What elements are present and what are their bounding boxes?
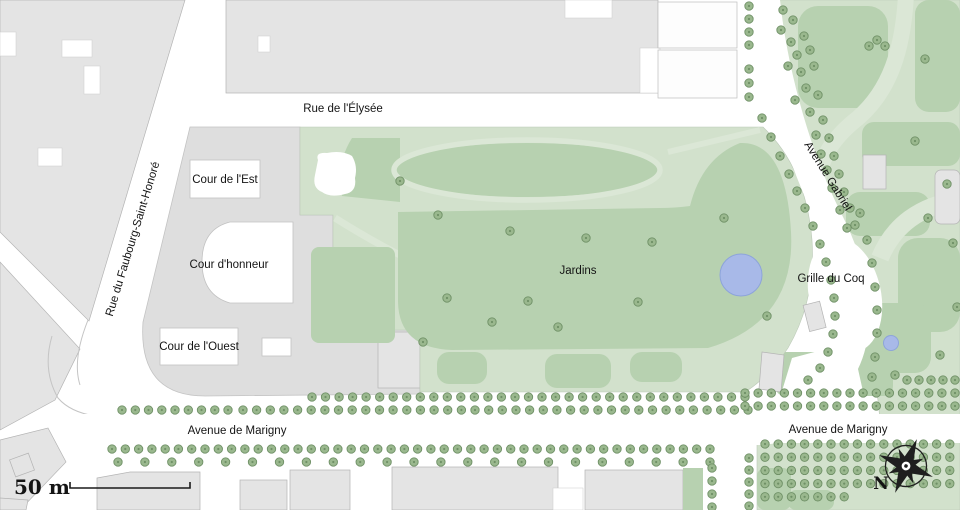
tree-icon [389, 393, 397, 401]
tree-icon [517, 458, 525, 466]
tree-icon [464, 458, 472, 466]
tree-icon [863, 236, 871, 244]
tree-center [669, 448, 671, 450]
garden-pond [720, 254, 762, 296]
tree-icon [118, 406, 126, 414]
tree-center [941, 392, 943, 394]
tree-icon [802, 84, 810, 92]
tree-icon [816, 240, 824, 248]
tree-center [582, 396, 584, 398]
tree-icon [853, 479, 861, 487]
tree-center [936, 469, 938, 471]
tree-icon [843, 224, 851, 232]
tree-icon [266, 406, 274, 414]
tree-center [946, 183, 948, 185]
tree-icon [335, 393, 343, 401]
tree-center [711, 480, 713, 482]
tree-center [417, 448, 419, 450]
tree-center [324, 409, 326, 411]
tree-center [922, 483, 924, 485]
tree-center [568, 396, 570, 398]
tree-center [637, 301, 639, 303]
tree-icon [777, 26, 785, 34]
tree-center [403, 448, 405, 450]
tree-icon [467, 445, 475, 453]
tree-center [446, 396, 448, 398]
tree-icon [800, 466, 808, 474]
street-label-avenue-de-marigny-west: Avenue de Marigny [188, 425, 287, 437]
tree-center [909, 483, 911, 485]
tree-icon [648, 406, 656, 414]
tree-center [928, 405, 930, 407]
tree-center [823, 405, 825, 407]
tree-center [556, 409, 558, 411]
tree-center [324, 396, 326, 398]
tree-center [365, 409, 367, 411]
tree-center [830, 469, 832, 471]
tree-icon [565, 393, 573, 401]
tree-center [377, 448, 379, 450]
tree-center [870, 443, 872, 445]
tree-center [804, 207, 806, 209]
tree-icon [457, 406, 465, 414]
tree-center [242, 409, 244, 411]
tree-icon [727, 393, 735, 401]
tree-icon [471, 406, 479, 414]
tree-center [915, 405, 917, 407]
tree-center [419, 409, 421, 411]
tree-center [217, 448, 219, 450]
tree-icon [635, 406, 643, 414]
tree-icon [846, 389, 854, 397]
tree-center [709, 448, 711, 450]
tree-icon [946, 453, 954, 461]
tree-icon [846, 402, 854, 410]
tree-icon [921, 55, 929, 63]
tree-center [413, 461, 415, 463]
tree-icon [158, 406, 166, 414]
park-pavilion [863, 155, 886, 189]
tree-icon [108, 445, 116, 453]
tree-center [709, 461, 711, 463]
tree-icon [400, 445, 408, 453]
tree-icon [673, 393, 681, 401]
tree-center [655, 461, 657, 463]
tree-icon [830, 152, 838, 160]
tree-icon [457, 393, 465, 401]
tree-center [696, 448, 698, 450]
tree-icon [480, 445, 488, 453]
tree-center [748, 505, 750, 507]
tree-center [392, 396, 394, 398]
tree-center [597, 409, 599, 411]
tree-icon [787, 466, 795, 474]
tree-icon [224, 406, 232, 414]
tree-center [828, 137, 830, 139]
tree-icon [498, 406, 506, 414]
tree-center [805, 87, 807, 89]
tree-icon [871, 353, 879, 361]
tree-icon [840, 493, 848, 501]
tree-center [949, 469, 951, 471]
tree-icon [866, 440, 874, 448]
tree-icon [761, 440, 769, 448]
tree-center [790, 443, 792, 445]
tree-center [720, 409, 722, 411]
tree-center [843, 456, 845, 458]
tree-icon [745, 2, 753, 10]
lawn [545, 354, 611, 388]
tree-icon [859, 402, 867, 410]
tree-center [757, 405, 759, 407]
tree-center [191, 448, 193, 450]
tree-icon [946, 479, 954, 487]
tree-icon [720, 214, 728, 222]
tree-center [813, 65, 815, 67]
parcel [658, 50, 737, 98]
tree-icon [825, 134, 833, 142]
tree-icon [745, 93, 753, 101]
tree-icon [267, 445, 275, 453]
tree-icon [307, 406, 315, 414]
tree-center [730, 396, 732, 398]
tree-center [924, 58, 926, 60]
tree-center [636, 396, 638, 398]
tree-center [748, 457, 750, 459]
tree-center [777, 456, 779, 458]
tree-center [337, 409, 339, 411]
lawn [630, 352, 682, 382]
tree-center [748, 82, 750, 84]
tree-icon [776, 152, 784, 160]
tree-icon [666, 445, 674, 453]
tree-icon [131, 406, 139, 414]
tree-icon [806, 46, 814, 54]
tree-center [609, 396, 611, 398]
tree-center [351, 409, 353, 411]
tree-icon [383, 458, 391, 466]
tree-center [796, 190, 798, 192]
tree-icon [634, 298, 642, 306]
tree-icon [859, 389, 867, 397]
tree-center [174, 409, 176, 411]
tree-center [830, 456, 832, 458]
tree-icon [851, 221, 859, 229]
tree-icon [903, 376, 911, 384]
tree-center [651, 409, 653, 411]
tree-icon [943, 180, 951, 188]
tree-center [856, 456, 858, 458]
tree-center [884, 45, 886, 47]
tree-center [856, 443, 858, 445]
tree-icon [793, 389, 801, 397]
tree-center [817, 94, 819, 96]
tree-icon [252, 406, 260, 414]
tree-icon [434, 211, 442, 219]
tree-center [555, 396, 557, 398]
tree-center [849, 405, 851, 407]
tree-icon [144, 406, 152, 414]
tree-center [138, 448, 140, 450]
tree-icon [293, 406, 301, 414]
tree-icon [761, 453, 769, 461]
courtyard-cutout [640, 48, 660, 93]
tree-center [764, 456, 766, 458]
tree-center [437, 214, 439, 216]
tree-icon [387, 445, 395, 453]
tree-center [483, 448, 485, 450]
tree-icon [827, 479, 835, 487]
gate-building [759, 352, 784, 392]
tree-icon [806, 402, 814, 410]
tree-icon [741, 402, 749, 410]
tree-center [777, 496, 779, 498]
tree-center [770, 136, 772, 138]
tree-icon [679, 458, 687, 466]
tree-center [589, 448, 591, 450]
tree-center [456, 448, 458, 450]
tree-center [164, 448, 166, 450]
tree-center [386, 461, 388, 463]
tree-icon [814, 466, 822, 474]
tree-icon [493, 445, 501, 453]
tree-icon [767, 402, 775, 410]
tree-icon [566, 406, 574, 414]
tree-center [305, 461, 307, 463]
tree-center [117, 461, 119, 463]
place-label-cour-de-l-est: Cour de l'Est [192, 174, 258, 186]
tree-icon [307, 445, 315, 453]
tree-center [949, 483, 951, 485]
tree-icon [334, 406, 342, 414]
tree-icon [485, 406, 493, 414]
tree-center [422, 341, 424, 343]
tree-center [928, 392, 930, 394]
tree-icon [544, 458, 552, 466]
tree-icon [730, 406, 738, 414]
tree-center [949, 456, 951, 458]
tree-center [359, 461, 361, 463]
tree-icon [938, 402, 946, 410]
tree-icon [600, 445, 608, 453]
tree-icon [389, 406, 397, 414]
tree-center [876, 309, 878, 311]
tree-center [144, 461, 146, 463]
tree-icon [652, 458, 660, 466]
tree-icon [911, 402, 919, 410]
tree-center [536, 448, 538, 450]
tree-icon [554, 323, 562, 331]
tree-icon [653, 445, 661, 453]
tree-icon [939, 376, 947, 384]
tree-center [651, 241, 653, 243]
tree-icon [927, 376, 935, 384]
tree-icon [814, 453, 822, 461]
tree-icon [573, 445, 581, 453]
tree-center [496, 448, 498, 450]
tree-center [406, 396, 408, 398]
tree-icon [374, 445, 382, 453]
tree-icon [470, 393, 478, 401]
parcel [658, 2, 737, 48]
tree-center [817, 496, 819, 498]
tree-icon [873, 329, 881, 337]
tree-icon [211, 406, 219, 414]
tree-center [467, 461, 469, 463]
tree-center [682, 448, 684, 450]
building-block [290, 470, 350, 510]
tree-icon [932, 466, 940, 474]
tree-icon [648, 238, 656, 246]
courtyard-cutout [553, 488, 583, 510]
tree-icon [660, 393, 668, 401]
place-label-jardins: Jardins [559, 265, 596, 277]
tree-icon [800, 453, 808, 461]
tree-center [874, 286, 876, 288]
tree-icon [254, 445, 262, 453]
tree-center [283, 409, 285, 411]
tree-center [866, 239, 868, 241]
tree-center [954, 405, 956, 407]
tree-center [390, 448, 392, 450]
tree-icon [320, 445, 328, 453]
tree-center [443, 448, 445, 450]
tree-center [350, 448, 352, 450]
park-pavilion [935, 170, 960, 224]
courtyard-cutout [62, 40, 92, 57]
tree-center [748, 5, 750, 7]
tree-icon [866, 453, 874, 461]
tree-icon [613, 445, 621, 453]
tree-icon [763, 312, 771, 320]
tree-icon [779, 6, 787, 14]
tree-center [846, 227, 848, 229]
tree-icon [488, 318, 496, 326]
tree-center [748, 68, 750, 70]
tree-icon [121, 445, 129, 453]
tree-center [804, 443, 806, 445]
tree-center [111, 448, 113, 450]
small-pond [884, 336, 899, 351]
tree-icon [946, 440, 954, 448]
lawn [311, 247, 395, 343]
tree-center [918, 379, 920, 381]
tree-icon [484, 393, 492, 401]
tree-icon [689, 406, 697, 414]
tree-icon [594, 406, 602, 414]
tree-icon [872, 402, 880, 410]
tree-icon [362, 393, 370, 401]
tree-icon [761, 493, 769, 501]
tree-icon [774, 479, 782, 487]
tree-icon [873, 306, 881, 314]
tree-icon [241, 445, 249, 453]
tree-icon [745, 502, 753, 510]
tree-icon [787, 453, 795, 461]
tree-center [819, 367, 821, 369]
tree-center [838, 173, 840, 175]
tree-icon [872, 389, 880, 397]
tree-center [616, 448, 618, 450]
tree-icon [925, 402, 933, 410]
elysee-palace-map: Rue de l'ÉlyséeRue du Faubourg-Saint-Hon… [0, 0, 960, 510]
tree-icon [687, 393, 695, 401]
tree-icon [741, 389, 749, 397]
tree-center [833, 297, 835, 299]
tree-icon [800, 479, 808, 487]
tree-center [800, 71, 802, 73]
tree-icon [745, 79, 753, 87]
tree-center [779, 155, 781, 157]
tree-center [790, 483, 792, 485]
tree-icon [881, 42, 889, 50]
tree-center [748, 493, 750, 495]
tree-center [777, 469, 779, 471]
tree-center [297, 409, 299, 411]
building-block [0, 498, 28, 510]
tree-icon [820, 402, 828, 410]
tree-center [711, 467, 713, 469]
tree-center [487, 396, 489, 398]
tree-center [225, 461, 227, 463]
tree-icon [148, 445, 156, 453]
tree-icon [700, 393, 708, 401]
tree-center [804, 469, 806, 471]
tree-center [501, 409, 503, 411]
tree-icon [538, 393, 546, 401]
tree-icon [791, 96, 799, 104]
tree-icon [646, 393, 654, 401]
tree-icon [639, 445, 647, 453]
tree-center [859, 212, 861, 214]
tree-icon [951, 402, 959, 410]
tree-icon [539, 406, 547, 414]
tree-center [665, 409, 667, 411]
tree-icon [195, 458, 203, 466]
tree-center [474, 409, 476, 411]
tree-icon [248, 458, 256, 466]
tree-icon [853, 466, 861, 474]
tree-center [909, 443, 911, 445]
tree-icon [708, 477, 716, 485]
tree-icon [586, 445, 594, 453]
tree-center [770, 405, 772, 407]
tree-center [875, 392, 877, 394]
tree-icon [758, 114, 766, 122]
tree-center [856, 483, 858, 485]
tree-center [251, 461, 253, 463]
tree-icon [827, 453, 835, 461]
tree-icon [827, 440, 835, 448]
tree-icon [830, 294, 838, 302]
tree-center [332, 461, 334, 463]
tree-icon [745, 41, 753, 49]
tree-icon [789, 16, 797, 24]
tree-center [868, 45, 870, 47]
tree-icon [511, 393, 519, 401]
tree-center [703, 396, 705, 398]
tree-center [796, 392, 798, 394]
tree-icon [280, 406, 288, 414]
tree-center [843, 469, 845, 471]
building-block [585, 470, 683, 510]
tree-center [744, 405, 746, 407]
tree-center [815, 134, 817, 136]
tree-icon [214, 445, 222, 453]
tree-icon [419, 338, 427, 346]
place-label-grille-du-coq: Grille du Coq [797, 273, 864, 285]
tree-center [527, 396, 529, 398]
